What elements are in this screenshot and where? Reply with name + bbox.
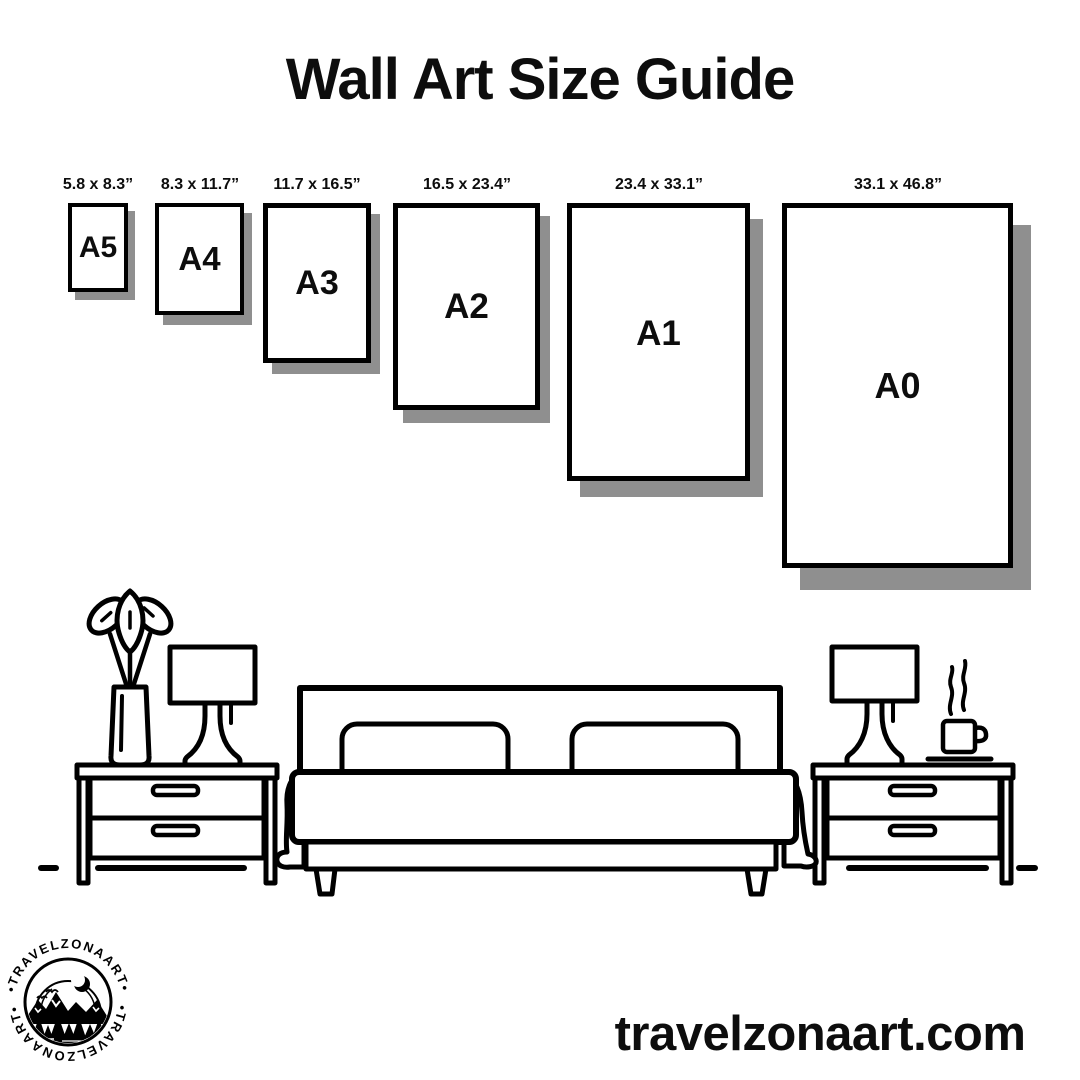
table-lamp-left-icon — [170, 647, 255, 765]
size-label-a4: 8.3 x 11.7” — [161, 176, 239, 194]
size-label-a2: 16.5 x 23.4” — [423, 176, 511, 194]
size-label-a3: 11.7 x 16.5” — [273, 176, 360, 194]
frame-a3: A3 — [263, 203, 371, 363]
size-label-a5: 5.8 x 8.3” — [63, 176, 133, 194]
size-label-a1: 23.4 x 33.1” — [615, 176, 703, 194]
logo-badge: •TRAVELZONAART• •TRAVELZONAART• — [2, 932, 140, 1078]
size-label-a0: 33.1 x 46.8” — [854, 176, 942, 194]
coffee-cup-icon — [928, 661, 991, 759]
vase-plant-icon — [83, 591, 178, 765]
page-title: Wall Art Size Guide — [0, 46, 1080, 113]
double-bed-icon — [277, 688, 816, 894]
bedroom-scene — [0, 575, 1080, 905]
size-guide-poster: Wall Art Size Guide 5.8 x 8.3” 8.3 x 11.… — [0, 0, 1080, 1080]
frame-a1: A1 — [567, 203, 750, 481]
frame-a5: A5 — [68, 203, 128, 292]
website-url: travelzonaart.com — [590, 1006, 1050, 1062]
frame-a0: A0 — [782, 203, 1013, 568]
frame-a2: A2 — [393, 203, 540, 410]
frame-a4: A4 — [155, 203, 244, 315]
table-lamp-right-icon — [832, 647, 917, 765]
